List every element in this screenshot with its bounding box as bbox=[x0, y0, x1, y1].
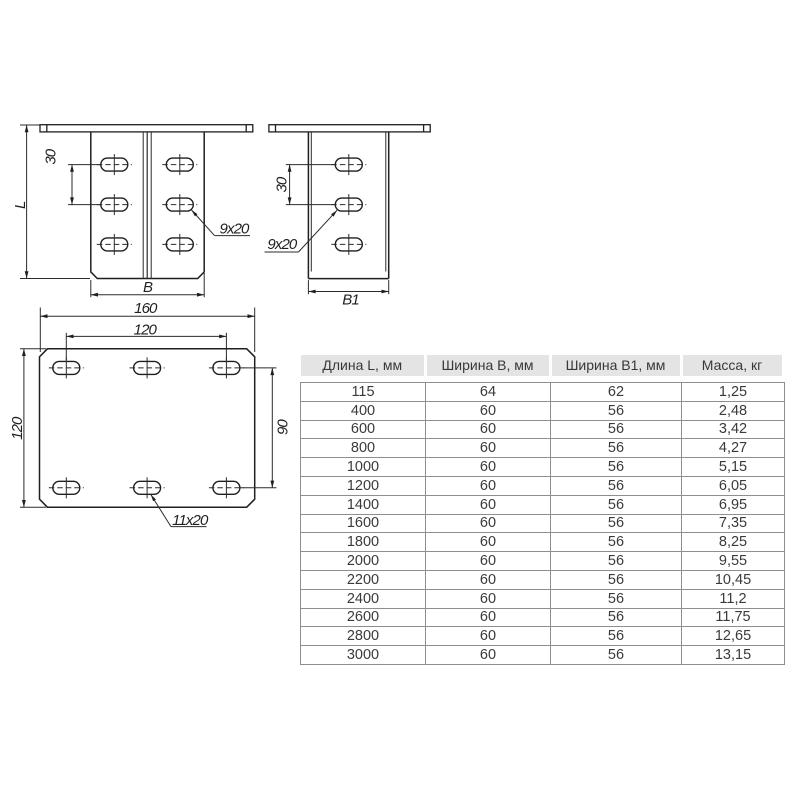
svg-text:120: 120 bbox=[134, 322, 158, 339]
svg-text:30: 30 bbox=[274, 176, 291, 192]
svg-text:160: 160 bbox=[134, 300, 158, 317]
svg-text:30: 30 bbox=[43, 148, 60, 164]
svg-text:L: L bbox=[12, 201, 29, 209]
svg-text:B: B bbox=[143, 279, 153, 296]
svg-text:9x20: 9x20 bbox=[267, 236, 297, 253]
svg-text:9x20: 9x20 bbox=[220, 221, 250, 238]
svg-text:11x20: 11x20 bbox=[172, 512, 209, 529]
svg-text:90: 90 bbox=[274, 419, 291, 435]
svg-text:120: 120 bbox=[9, 416, 26, 440]
svg-text:B1: B1 bbox=[342, 292, 359, 309]
